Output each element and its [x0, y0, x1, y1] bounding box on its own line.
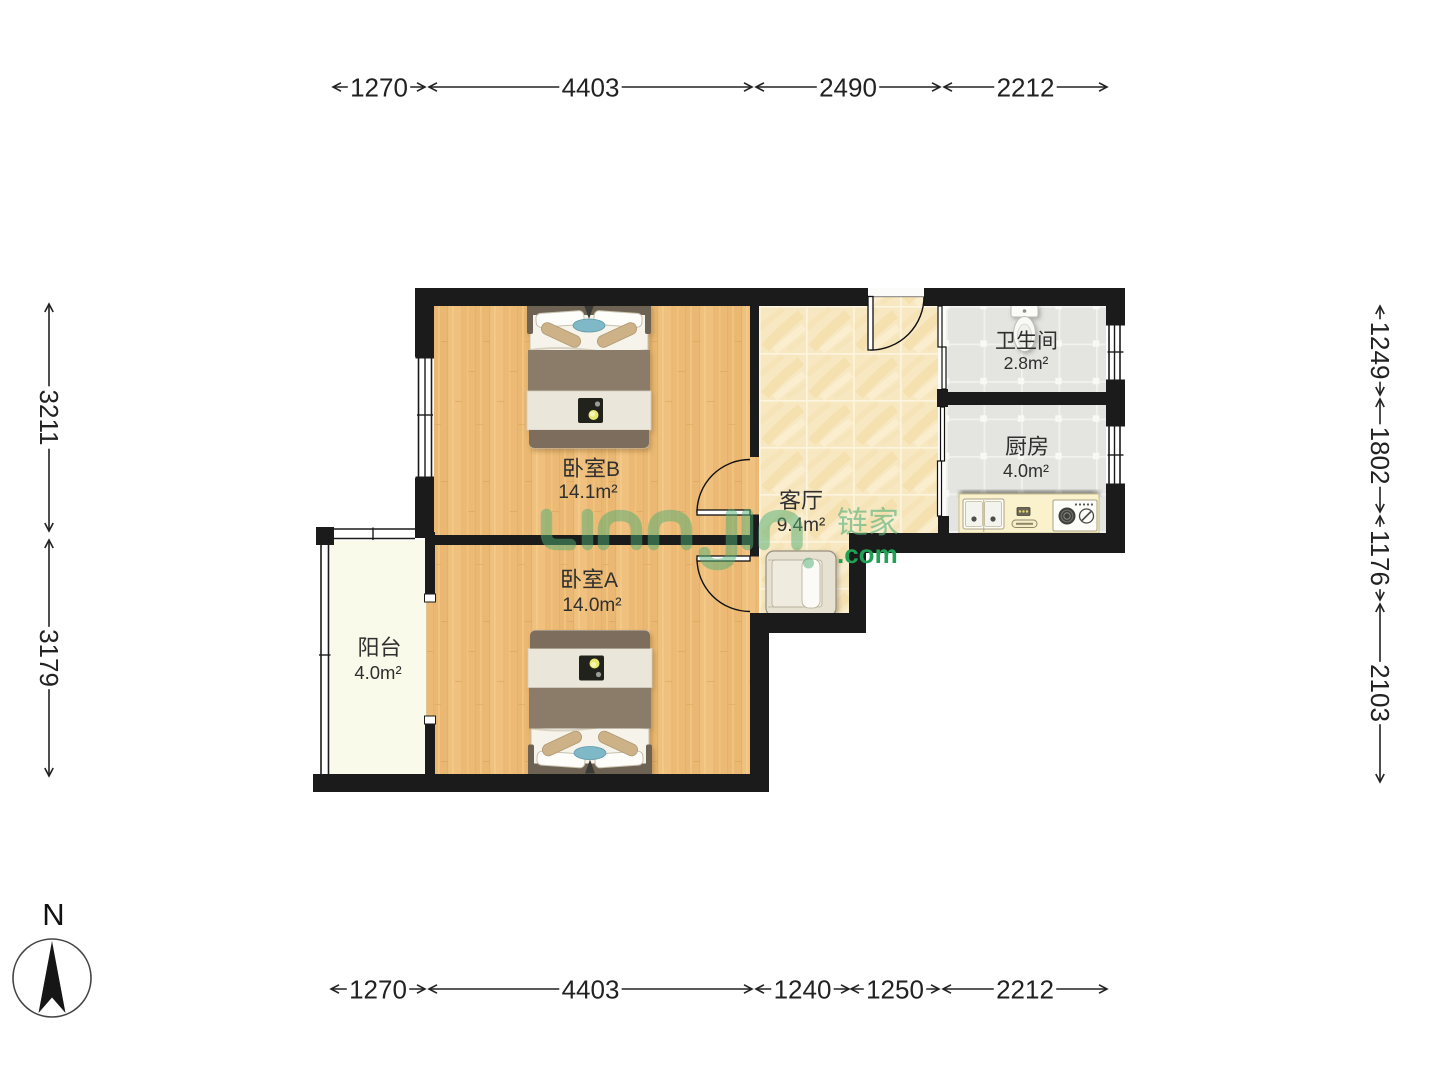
svg-text:4403: 4403	[562, 73, 620, 103]
svg-text:14.0m²: 14.0m²	[562, 595, 621, 616]
svg-text:N: N	[42, 897, 64, 932]
svg-text:2212: 2212	[996, 975, 1054, 1005]
svg-text:4.0m²: 4.0m²	[1003, 461, 1049, 481]
svg-text:.com: .com	[837, 539, 898, 569]
svg-text:1270: 1270	[350, 73, 408, 103]
svg-text:14.1m²: 14.1m²	[558, 482, 617, 503]
svg-text:4.0m²: 4.0m²	[354, 662, 401, 683]
svg-text:3211: 3211	[34, 390, 64, 446]
svg-text:1176: 1176	[1365, 530, 1395, 586]
svg-text:4403: 4403	[562, 975, 620, 1005]
svg-text:2.8m²: 2.8m²	[1004, 353, 1049, 373]
svg-text:2490: 2490	[819, 73, 877, 103]
svg-text:1250: 1250	[866, 975, 924, 1005]
svg-text:1270: 1270	[349, 975, 407, 1005]
svg-text:1802: 1802	[1365, 427, 1395, 485]
svg-text:1240: 1240	[774, 975, 832, 1005]
svg-text:3179: 3179	[34, 629, 64, 687]
svg-text:2103: 2103	[1365, 664, 1395, 722]
svg-text:1249: 1249	[1365, 322, 1395, 380]
svg-text:A: A	[604, 569, 618, 592]
svg-text:B: B	[606, 458, 620, 481]
svg-text:2212: 2212	[997, 73, 1055, 103]
